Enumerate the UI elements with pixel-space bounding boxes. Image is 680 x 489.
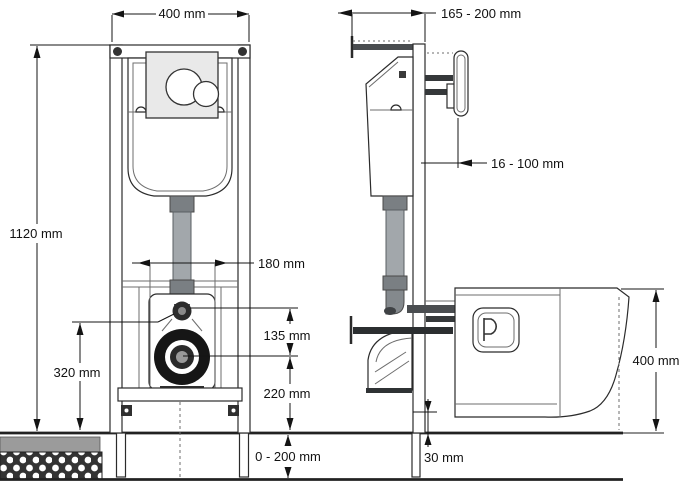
dim-label-bowl-floor-clearance: 30 mm <box>424 450 464 465</box>
bowl-fixing-rod <box>353 327 453 334</box>
pipe-shaft <box>173 212 191 280</box>
dim-label-frame-depth: 165 - 200 mm <box>441 6 521 21</box>
flush-plate <box>146 52 219 118</box>
actuator-side <box>425 51 468 116</box>
dim-bowl-top-height: 400 mm <box>621 289 679 431</box>
dim-label-bowl-top-height: 400 mm <box>633 353 680 368</box>
side-frame-rail <box>413 44 425 433</box>
rail-below-floor <box>412 433 420 477</box>
bowl-side <box>455 288 629 430</box>
pipe-collar-top <box>170 196 194 212</box>
top-right-bolt <box>238 47 247 56</box>
dim-label-inlet-above-floor: 320 mm <box>54 365 101 380</box>
dim-frame-depth: 165 - 200 mm <box>338 6 521 42</box>
cistern-side <box>366 57 413 196</box>
dim-floor-buildup: 0 - 200 mm <box>255 435 321 478</box>
floor-aggregate-block <box>0 452 102 480</box>
dim-label-bolt-spacing: 180 mm <box>258 256 305 271</box>
actuator-rod-upper <box>425 75 453 81</box>
bowl-fixing-detail <box>473 308 519 352</box>
small-flush-button <box>194 82 219 107</box>
right-frame-rail <box>238 45 250 433</box>
dim-bolt-spacing: 180 mm <box>132 256 305 271</box>
dim-actuator-adjust: 16 - 100 mm <box>421 118 564 171</box>
dim-label-floor-buildup: 0 - 200 mm <box>255 449 321 464</box>
right-adjustable-foot <box>240 433 249 477</box>
anchor-rod <box>353 44 413 50</box>
flush-pipe-front <box>170 196 194 304</box>
floor-screed-layer <box>0 437 100 452</box>
left-clip <box>136 107 146 112</box>
dim-label-actuator-adjust: 16 - 100 mm <box>491 156 564 171</box>
actuator-disc <box>454 51 468 116</box>
dim-label-frame-height: 1120 mm <box>9 226 62 241</box>
installation-diagram: 400 mm 1120 mm 320 mm 180 mm <box>0 0 680 489</box>
bowl-inlet-connector <box>407 305 455 313</box>
front-view: 400 mm 1120 mm 320 mm 180 mm <box>9 6 320 478</box>
side-view: 165 - 200 mm 16 - 100 mm 400 mm 30 mm <box>338 6 679 477</box>
bottom-crossbar <box>118 388 242 401</box>
floor-section <box>0 433 664 480</box>
dim-outlet-to-floor: 220 mm <box>264 357 311 430</box>
waste-bend-side <box>366 330 412 393</box>
pipe-collar-bottom <box>170 280 194 294</box>
dim-label-outlet-to-floor: 220 mm <box>264 386 311 401</box>
dim-label-inlet-to-outlet: 135 mm <box>264 328 311 343</box>
dim-frame-width: 400 mm <box>112 6 249 42</box>
wall-anchor <box>352 36 413 58</box>
left-frame-rail <box>110 45 122 433</box>
bowl-body <box>455 288 629 417</box>
dim-label-frame-width: 400 mm <box>159 6 206 21</box>
top-left-bolt <box>113 47 122 56</box>
left-adjustable-foot <box>117 433 126 477</box>
